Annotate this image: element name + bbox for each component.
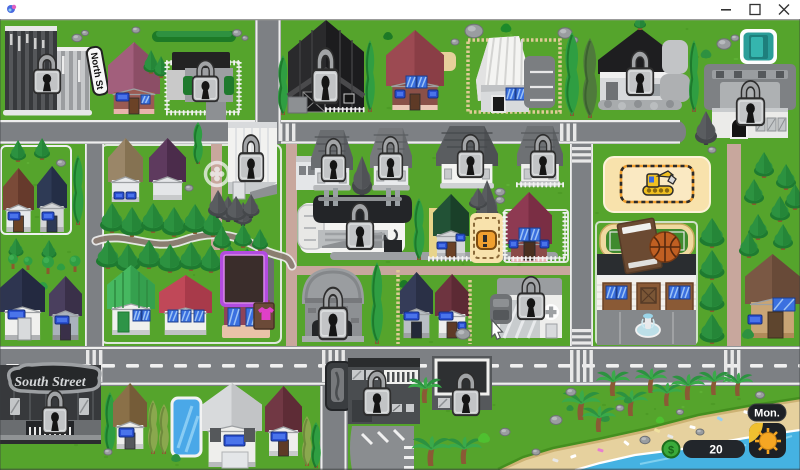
svg-text:20: 20 [709,443,723,457]
svg-text:$: $ [668,445,674,457]
svg-text:South Street: South Street [14,375,86,390]
svg-text:Mon.: Mon. [754,408,780,420]
